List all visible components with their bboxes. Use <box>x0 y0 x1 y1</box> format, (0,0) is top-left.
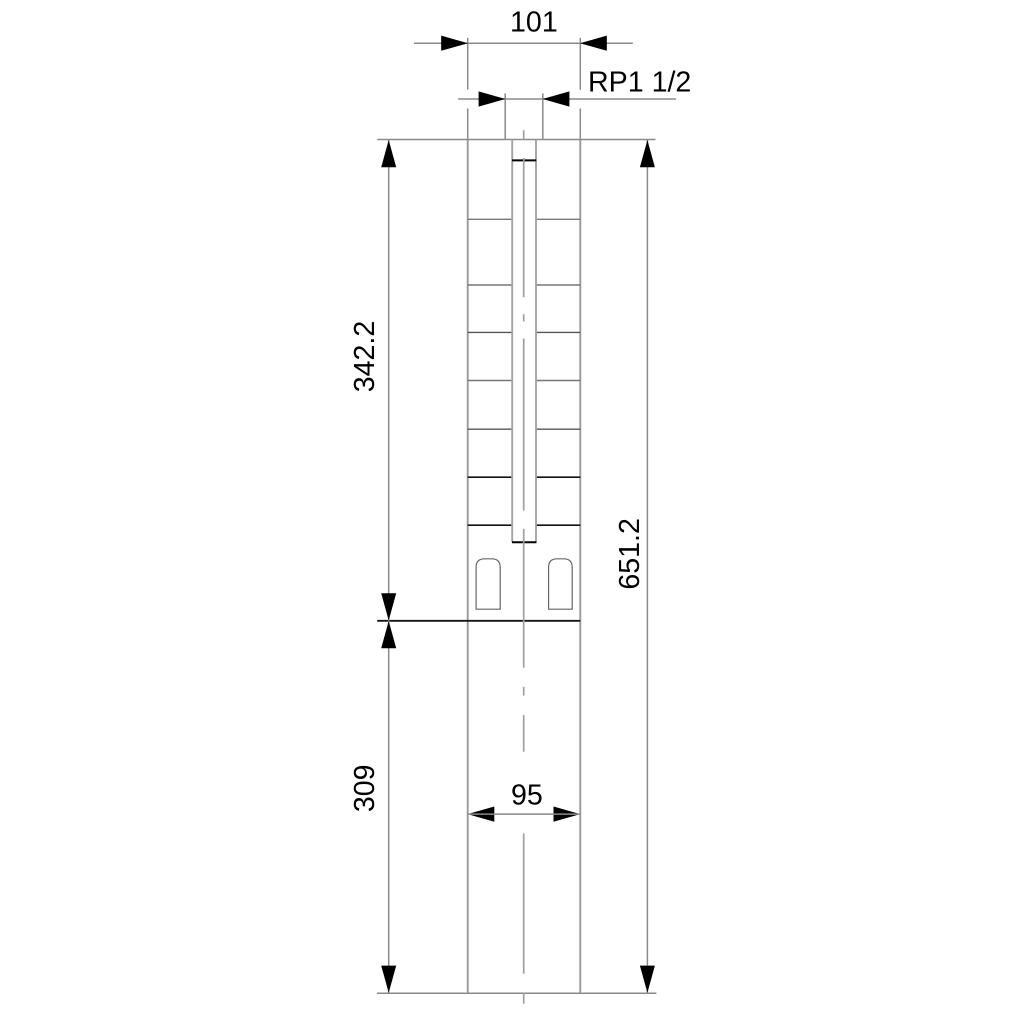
svg-text:101: 101 <box>510 7 558 39</box>
svg-text:95: 95 <box>511 780 543 812</box>
svg-text:309: 309 <box>349 764 381 812</box>
svg-text:RP1 1/2: RP1 1/2 <box>588 66 691 98</box>
svg-text:342.2: 342.2 <box>349 321 381 393</box>
svg-text:651.2: 651.2 <box>614 518 646 590</box>
